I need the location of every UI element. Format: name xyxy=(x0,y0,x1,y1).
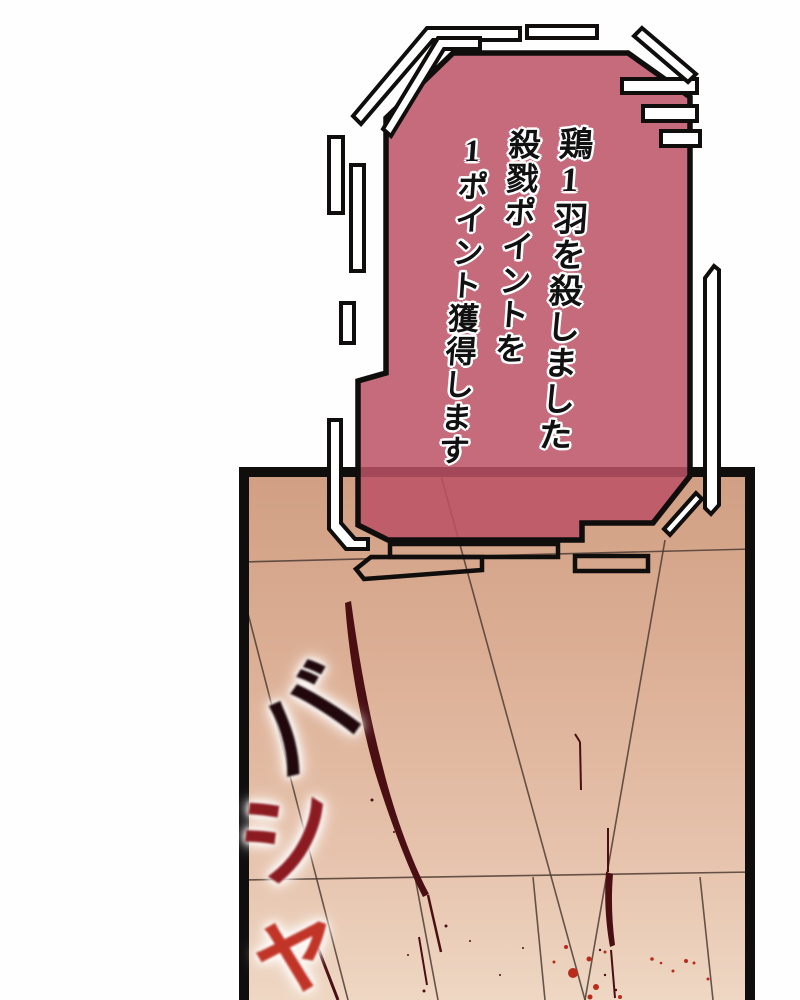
strip-left-1 xyxy=(329,137,343,213)
scene-graphics xyxy=(0,0,800,1000)
strip-right-vertical xyxy=(705,266,719,514)
manga-page: 鶏1羽を殺しました 殺戮ポイントを 1ポイント獲得します バ シ ャ xyxy=(0,0,800,1000)
strip-left-3 xyxy=(341,303,354,343)
frame-notch-2 xyxy=(643,106,697,121)
strip-left-2 xyxy=(351,165,364,271)
frame-notch-3 xyxy=(661,131,700,146)
strip-top-bar xyxy=(527,26,597,38)
